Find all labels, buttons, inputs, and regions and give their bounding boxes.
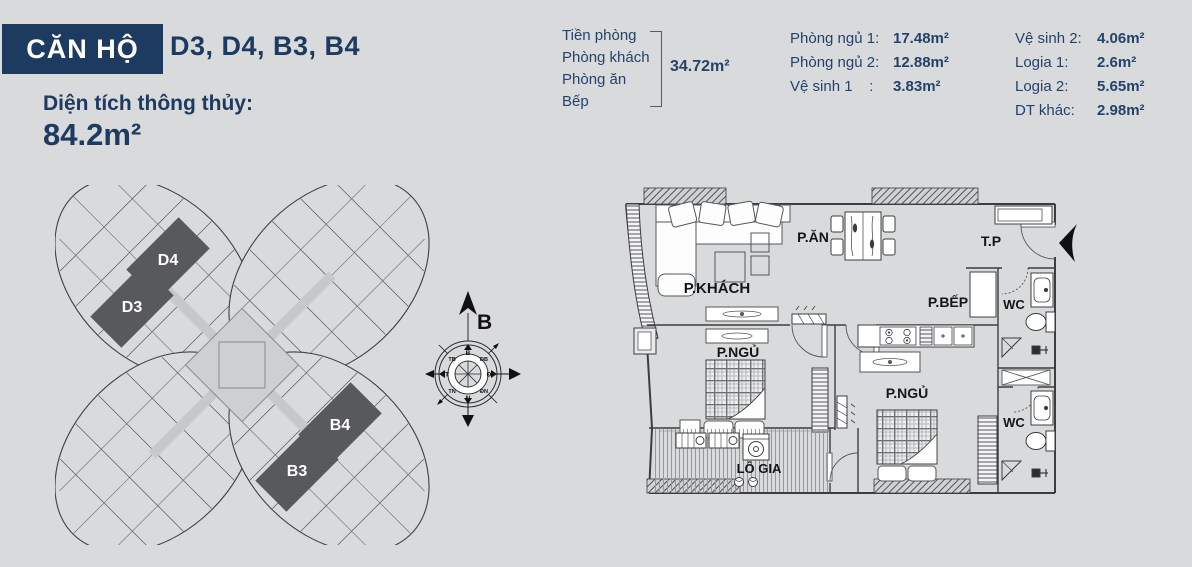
area-row-label: DT khác: xyxy=(1015,99,1097,123)
area-row: Phòng ngủ 2: 12.88m² xyxy=(790,51,949,75)
area-row-value: 2.6m² xyxy=(1097,51,1136,75)
room-label-loggia: LÔ GIA xyxy=(737,461,782,476)
room-group-item: Phòng khách xyxy=(562,47,650,69)
floorplan-page: CĂN HỘ D3, D4, B3, B4 Diện tích thông th… xyxy=(0,0,1192,567)
group-bracket xyxy=(650,31,662,107)
room-label-wc1: WC xyxy=(1003,297,1025,312)
dir-t: T xyxy=(445,372,449,379)
group-total-area: 34.72m² xyxy=(670,58,730,76)
unit-list: D3, D4, B3, B4 xyxy=(170,31,360,62)
area-row: DT khác: 2.98m² xyxy=(1015,99,1145,123)
entry-wardrobe xyxy=(995,206,1052,224)
room-label-kitchen: P.BẾP xyxy=(928,294,968,310)
area-row: Vệ sinh 1 : 3.83m² xyxy=(790,75,949,99)
area-column-3: Vệ sinh 2: 4.06m² Logia 1: 2.6m² Logia 2… xyxy=(1015,27,1145,123)
room-label-living: P.KHÁCH xyxy=(684,280,750,297)
dir-db: ĐB xyxy=(480,357,488,363)
apartment-floor-plan: P.KHÁCH P.ĂN T.P P.BẾP WC P.NGỦ P.NGỦ WC… xyxy=(618,176,1078,506)
unit-badge: CĂN HỘ xyxy=(2,24,163,74)
bed2 xyxy=(877,410,937,481)
dining-table xyxy=(831,212,895,260)
area-row: Vệ sinh 2: 4.06m² xyxy=(1015,27,1145,51)
room-group-item: Tiền phòng xyxy=(562,25,650,47)
unit-badge-label: CĂN HỘ xyxy=(26,34,139,65)
area-row-value: 2.98m² xyxy=(1097,99,1145,123)
room-label-bedroom1: P.NGỦ xyxy=(717,343,760,360)
area-caption: Diện tích thông thủy: xyxy=(43,92,253,116)
area-row-label: Vệ sinh 2: xyxy=(1015,27,1097,51)
area-row-label: Logia 2: xyxy=(1015,75,1097,99)
area-row-label: Phòng ngủ 2: xyxy=(790,51,893,75)
unit-d3-label: D3 xyxy=(122,299,143,316)
wc2-fixtures xyxy=(1002,391,1055,480)
area-row-value: 17.48m² xyxy=(893,27,949,51)
compass-north-label: B xyxy=(477,311,492,334)
washing-machine xyxy=(743,434,769,460)
dir-b: B xyxy=(466,350,471,357)
dir-dn: ĐN xyxy=(480,389,488,395)
area-row-value: 4.06m² xyxy=(1097,27,1145,51)
fridge xyxy=(970,272,996,317)
tv-console xyxy=(706,307,778,321)
total-area-value: 84.2m² xyxy=(43,117,141,153)
kitchen-counter xyxy=(858,325,974,347)
ac-unit-living xyxy=(792,306,826,324)
bed1 xyxy=(680,360,765,438)
room-label-dining: P.ĂN xyxy=(797,229,829,245)
dir-n: N xyxy=(466,395,471,402)
wardrobe1 xyxy=(812,368,828,432)
entrance-arrow-icon xyxy=(1059,224,1077,262)
area-row-value: 5.65m² xyxy=(1097,75,1145,99)
area-row: Logia 2: 5.65m² xyxy=(1015,75,1145,99)
unit-d4-label: D4 xyxy=(158,252,179,269)
area-row: Logia 1: 2.6m² xyxy=(1015,51,1145,75)
room-label-wc2: WC xyxy=(1003,415,1025,430)
bedroom1-dresser xyxy=(706,329,768,343)
dir-d: Đ xyxy=(487,372,492,379)
area-row-value: 3.83m² xyxy=(893,75,941,99)
room-group-item: Bếp xyxy=(562,91,650,113)
dir-tb: TB xyxy=(448,357,455,363)
duct-shaft xyxy=(1002,370,1050,385)
area-row-value: 12.88m² xyxy=(893,51,949,75)
room-label-entry: T.P xyxy=(981,233,1001,249)
compass-rose: B xyxy=(413,285,523,435)
area-row: Phòng ngủ 1: 17.48m² xyxy=(790,27,949,51)
unit-b4-label: B4 xyxy=(330,417,351,434)
area-row-label: Phòng ngủ 1: xyxy=(790,27,893,51)
area-row-label: Vệ sinh 1 : xyxy=(790,75,893,99)
wc1-fixtures xyxy=(1002,273,1055,357)
living-window-band xyxy=(626,204,658,354)
ac-unit-bed2 xyxy=(837,396,855,428)
wardrobe2 xyxy=(978,416,997,484)
building-site-diagram: D4 D3 B4 B3 xyxy=(55,185,430,545)
kitchen-sideboard xyxy=(860,352,920,372)
room-group-item: Phòng ăn xyxy=(562,69,650,91)
area-row-label: Logia 1: xyxy=(1015,51,1097,75)
dir-tn: TN xyxy=(448,389,455,395)
north-arrow-icon xyxy=(459,291,477,341)
area-column-2: Phòng ngủ 1: 17.48m² Phòng ngủ 2: 12.88m… xyxy=(790,27,949,99)
unit-b3-label: B3 xyxy=(287,463,308,480)
room-label-bedroom2: P.NGỦ xyxy=(886,384,929,401)
room-group-list: Tiền phòng Phòng khách Phòng ăn Bếp xyxy=(562,25,650,113)
